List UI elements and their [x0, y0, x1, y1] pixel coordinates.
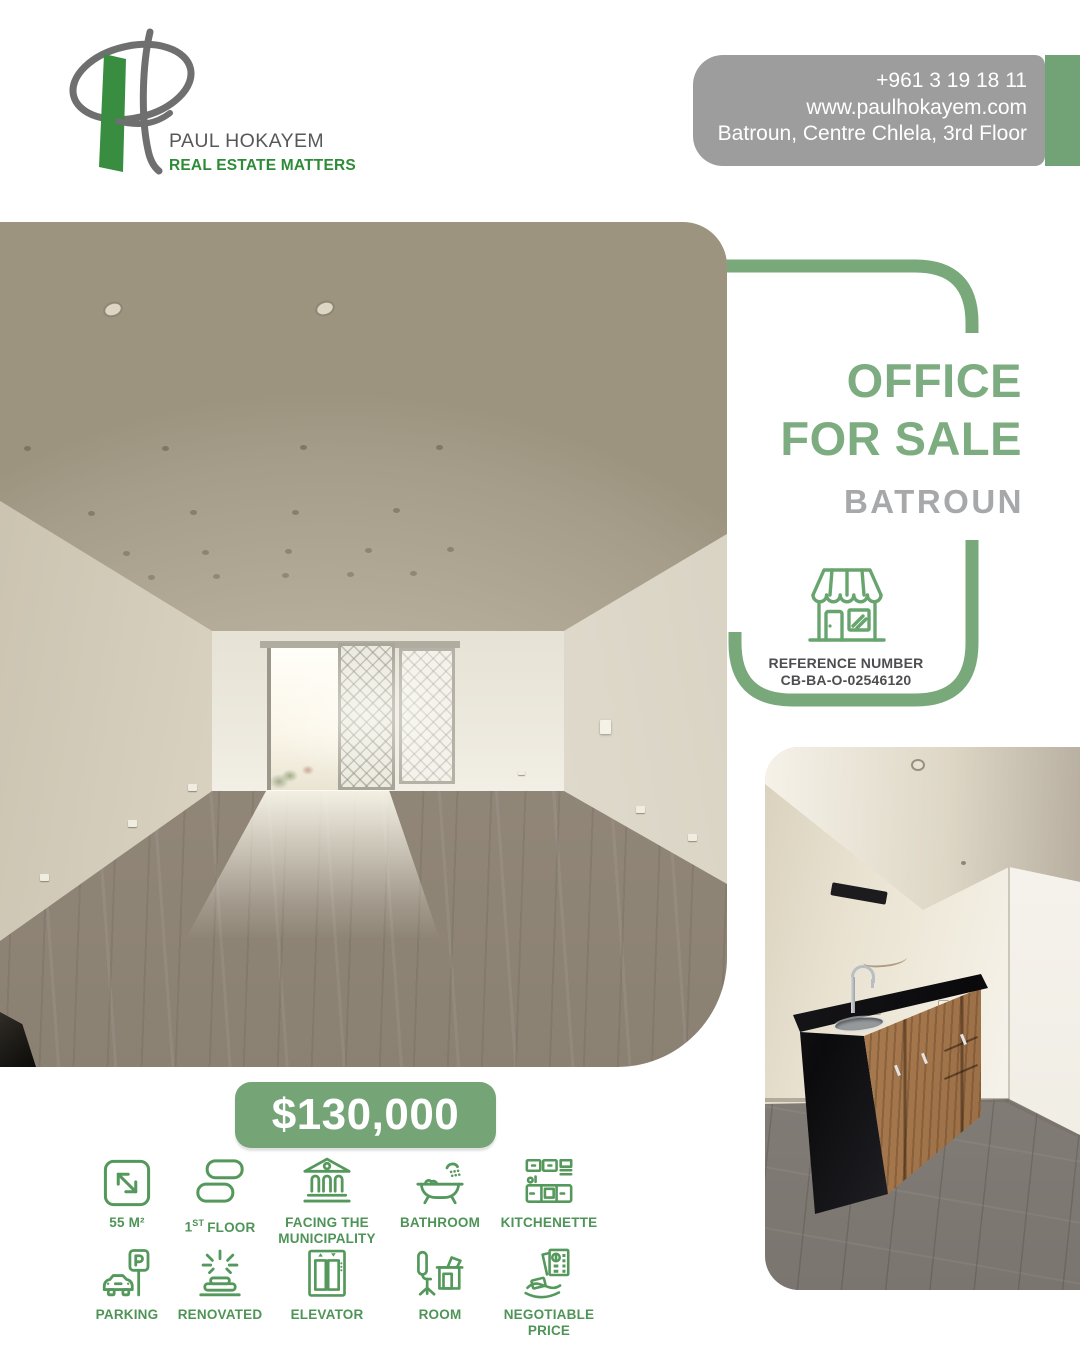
kitchenette-icon: [521, 1155, 577, 1211]
feature-label: RENOVATED: [160, 1307, 280, 1323]
brand-tagline: REAL ESTATE MATTERS: [169, 157, 356, 175]
wall-panel: [600, 720, 611, 734]
listing-location: BATROUN: [844, 483, 1024, 521]
wall-socket: [518, 770, 525, 775]
feature-bathroom: BATHROOM: [380, 1155, 500, 1231]
feature-label: ELEVATOR: [267, 1307, 387, 1323]
wall-socket: [188, 784, 197, 791]
listing-title: OFFICE FOR SALE: [780, 352, 1022, 468]
reference-number: CB-BA-O-02546120: [726, 672, 966, 689]
listing-title-line2: FOR SALE: [780, 410, 1022, 468]
renovated-sparkle-icon: [192, 1247, 248, 1303]
wall-socket: [128, 820, 137, 827]
kitchen-wall-corner: [1008, 867, 1010, 1103]
feature-label: BATHROOM: [380, 1215, 500, 1231]
feature-label: 1STFLOOR: [160, 1215, 280, 1236]
reference-label: REFERENCE NUMBER: [726, 655, 966, 672]
floor-level-icon: [192, 1155, 248, 1211]
faucet-spout: [871, 979, 874, 988]
feature-room: ROOM: [380, 1247, 500, 1323]
listing-title-line1: OFFICE: [780, 352, 1022, 410]
wall-socket: [688, 834, 697, 841]
feature-label: ROOM: [380, 1307, 500, 1323]
negotiable-price-icon: [521, 1247, 577, 1303]
contact-address: Batroun, Centre Chlela, 3rd Floor: [693, 121, 1027, 148]
feature-floor: 1STFLOOR: [160, 1155, 280, 1236]
feature-label: KITCHENETTE: [489, 1215, 609, 1231]
municipality-building-icon: [299, 1155, 355, 1211]
feature-renovated: RENOVATED: [160, 1247, 280, 1323]
price-badge: $130,000: [235, 1082, 496, 1148]
contact-accent-strip: [1045, 55, 1080, 166]
feature-negotiable: NEGOTIABLEPRICE: [489, 1247, 609, 1339]
office-room-icon: [412, 1247, 468, 1303]
elevator-icon: [299, 1247, 355, 1303]
brand-name: PAUL HOKAYEM: [169, 130, 356, 153]
feature-kitchenette: KITCHENETTE: [489, 1155, 609, 1231]
area-size-icon: [99, 1155, 155, 1211]
faucet-stem: [851, 977, 855, 1013]
flyer: PAUL HOKAYEM REAL ESTATE MATTERS +961 3 …: [0, 0, 1080, 1350]
contact-phone: +961 3 19 18 11: [693, 68, 1027, 95]
storefront-icon: [799, 563, 895, 647]
contact-website: www.paulhokayem.com: [693, 95, 1027, 122]
feature-municipality: FACING THEMUNICIPALITY: [267, 1155, 387, 1247]
ceiling-dot: [961, 861, 966, 865]
feature-label: NEGOTIABLEPRICE: [489, 1307, 609, 1339]
main-photo: [0, 222, 727, 1067]
ceiling-spotlights: [24, 446, 31, 451]
brand-text: PAUL HOKAYEM REAL ESTATE MATTERS: [169, 130, 356, 175]
parking-icon: [99, 1247, 155, 1303]
contact-box: +961 3 19 18 11 www.paulhokayem.com Batr…: [693, 55, 1045, 166]
bathtub-icon: [412, 1155, 468, 1211]
spotlight-icon: [911, 759, 925, 771]
feature-elevator: ELEVATOR: [267, 1247, 387, 1323]
reference-block: REFERENCE NUMBER CB-BA-O-02546120: [726, 655, 966, 689]
kitchenette-photo: [765, 747, 1080, 1290]
wall-socket: [636, 806, 645, 813]
feature-label: FACING THEMUNICIPALITY: [267, 1215, 387, 1247]
wall-socket: [40, 874, 49, 881]
